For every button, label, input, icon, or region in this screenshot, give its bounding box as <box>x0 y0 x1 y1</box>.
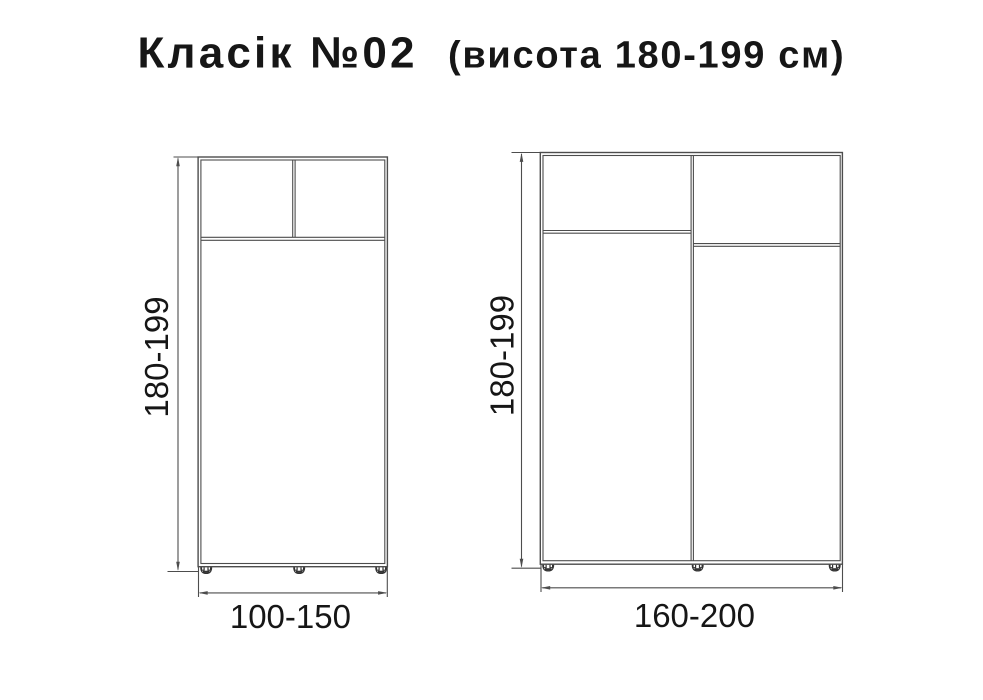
svg-text:180-199: 180-199 <box>138 296 175 417</box>
svg-text:180-199: 180-199 <box>484 295 521 416</box>
svg-text:Класік №02(висота 180-199 см): Класік №02(висота 180-199 см) <box>138 29 846 78</box>
svg-text:100-150: 100-150 <box>230 598 351 635</box>
svg-text:160-200: 160-200 <box>634 597 755 634</box>
